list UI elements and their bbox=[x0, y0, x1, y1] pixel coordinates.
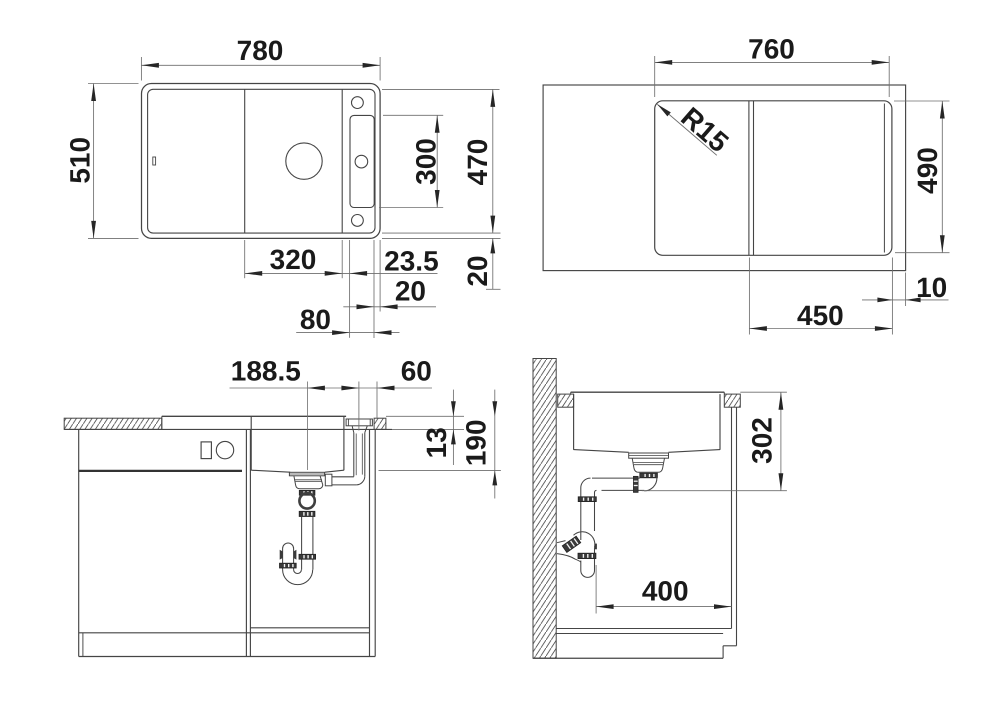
svg-text:450: 450 bbox=[797, 300, 844, 331]
svg-text:470: 470 bbox=[462, 139, 493, 186]
svg-text:13: 13 bbox=[421, 427, 452, 458]
svg-text:20: 20 bbox=[462, 255, 493, 286]
svg-text:760: 760 bbox=[748, 34, 795, 65]
svg-text:80: 80 bbox=[300, 304, 331, 335]
svg-text:190: 190 bbox=[461, 419, 492, 466]
svg-text:23.5: 23.5 bbox=[384, 246, 439, 277]
svg-text:490: 490 bbox=[912, 147, 943, 194]
svg-text:510: 510 bbox=[64, 137, 95, 184]
svg-text:320: 320 bbox=[270, 244, 317, 275]
svg-text:300: 300 bbox=[411, 138, 442, 185]
svg-text:780: 780 bbox=[237, 35, 284, 66]
svg-text:60: 60 bbox=[401, 356, 432, 387]
svg-text:20: 20 bbox=[395, 276, 426, 307]
svg-text:302: 302 bbox=[747, 417, 778, 464]
svg-text:10: 10 bbox=[916, 272, 947, 303]
svg-text:400: 400 bbox=[642, 575, 689, 606]
svg-text:188.5: 188.5 bbox=[231, 356, 301, 387]
